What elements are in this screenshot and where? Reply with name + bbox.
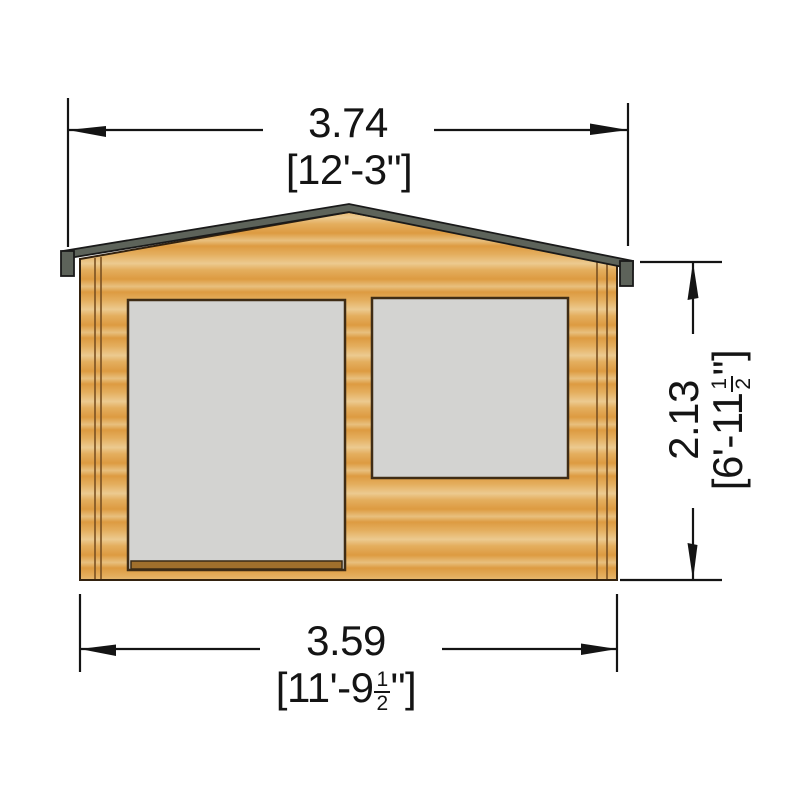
fraction-denominator: 2 bbox=[374, 693, 389, 715]
wall-width-fraction: 12 bbox=[374, 669, 389, 715]
wall-width-metric-label: 3.59 bbox=[196, 618, 496, 664]
door-glazed-panel bbox=[128, 300, 345, 570]
arrowhead-wall-left bbox=[80, 645, 116, 657]
roof-drip-edge-left bbox=[61, 251, 74, 276]
wall-width-imperial-prefix: [11'-9 bbox=[276, 664, 374, 711]
door-sill bbox=[131, 561, 342, 569]
wall-height-imperial-prefix: [6'-11 bbox=[704, 393, 751, 491]
fraction-numerator: 1 bbox=[709, 376, 733, 391]
elevation-drawing-page: 3.74 [12'-3"] 2.13 [6'-1112"] 3.59 [11'-… bbox=[0, 0, 800, 800]
arrowhead-roof-left bbox=[68, 126, 106, 137]
roof-width-imperial-label: [12'-3"] bbox=[199, 147, 499, 193]
wall-height-imperial-suffix: "] bbox=[704, 350, 751, 376]
arrowhead-wall-right bbox=[581, 644, 617, 656]
window-glazed-panel bbox=[372, 298, 568, 478]
cabin bbox=[61, 204, 633, 580]
wall-height-imperial-label: [6'-1112"] bbox=[706, 260, 750, 580]
wall-width-imperial-label: [11'-912"] bbox=[196, 665, 496, 711]
wall-height-label-group: 2.13 [6'-1112"] bbox=[662, 260, 750, 580]
roof-width-metric-label: 3.74 bbox=[198, 100, 498, 146]
fraction-denominator: 2 bbox=[733, 376, 755, 391]
arrowhead-roof-right bbox=[590, 124, 628, 136]
wall-height-metric-label: 2.13 bbox=[662, 260, 706, 580]
roof-drip-edge-right bbox=[620, 261, 633, 286]
wall-height-fraction: 12 bbox=[709, 376, 755, 391]
fraction-numerator: 1 bbox=[374, 669, 389, 693]
wall-width-imperial-suffix: "] bbox=[391, 664, 417, 711]
